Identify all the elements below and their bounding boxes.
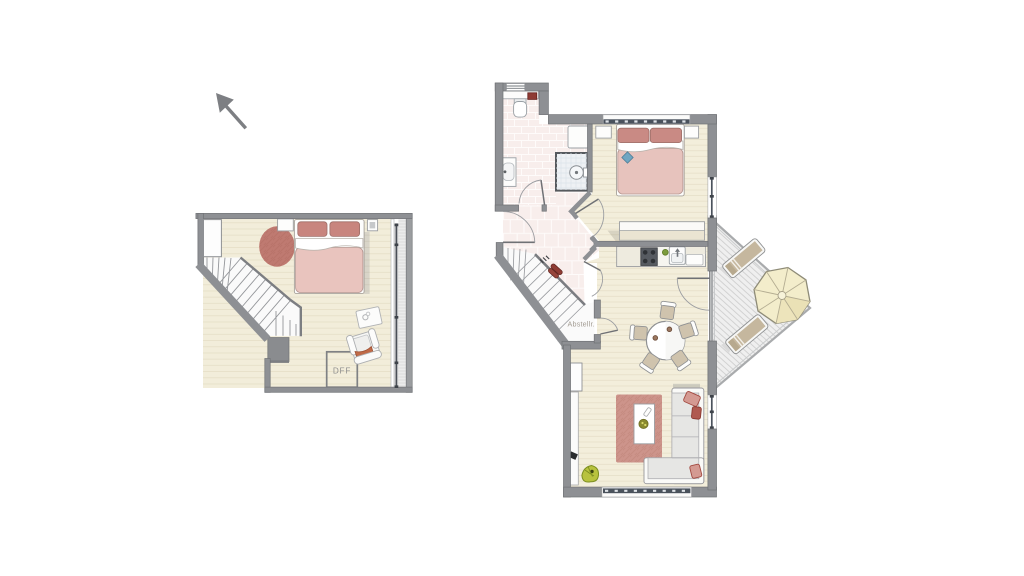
svg-text:Abstellr.: Abstellr. [568, 320, 595, 329]
svg-text:DFF: DFF [333, 367, 351, 376]
